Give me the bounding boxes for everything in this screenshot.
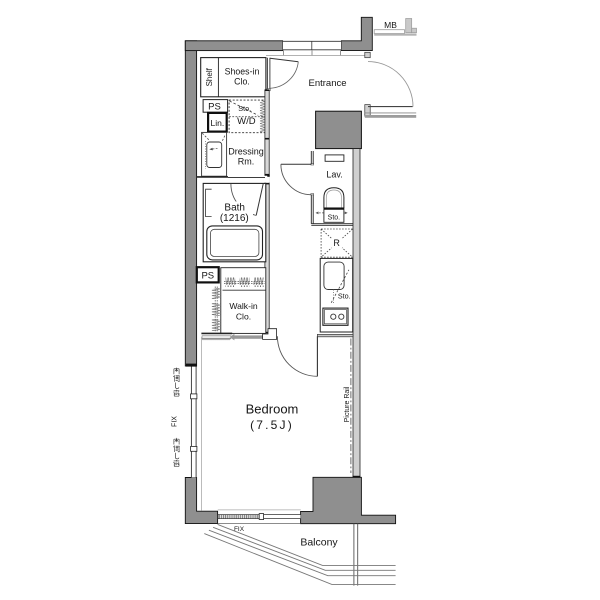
- svg-text:Clo.: Clo.: [236, 312, 251, 322]
- svg-text:FIX: FIX: [171, 416, 178, 427]
- svg-text:Entrance: Entrance: [308, 78, 346, 89]
- svg-text:W/D: W/D: [237, 116, 256, 127]
- svg-text:PS: PS: [208, 102, 221, 113]
- svg-text:Dressing: Dressing: [228, 147, 264, 157]
- svg-text:Sto.: Sto.: [338, 292, 351, 301]
- svg-text:FIX: FIX: [234, 526, 245, 533]
- svg-text:Rm.: Rm.: [238, 157, 255, 167]
- svg-text:Bedroom: Bedroom: [246, 402, 299, 417]
- svg-text:Sto.: Sto.: [328, 214, 341, 221]
- svg-text:MB: MB: [384, 20, 397, 30]
- svg-text:Lav.: Lav.: [326, 169, 342, 179]
- svg-text:Picture Rail: Picture Rail: [344, 386, 351, 422]
- svg-text:Shoes-in: Shoes-in: [225, 67, 260, 77]
- svg-text:Clo.: Clo.: [234, 77, 250, 87]
- svg-text:Sto.: Sto.: [238, 104, 251, 113]
- svg-text:Shelf: Shelf: [205, 67, 214, 86]
- svg-text:Bath: Bath: [224, 203, 245, 214]
- svg-text:PS: PS: [201, 271, 214, 282]
- svg-text:Walk-in: Walk-in: [229, 301, 258, 311]
- svg-text:(1216): (1216): [220, 213, 249, 224]
- svg-text:(7.5J): (7.5J): [250, 418, 294, 432]
- svg-text:Balcony: Balcony: [300, 536, 338, 548]
- svg-text:R: R: [333, 238, 340, 248]
- svg-text:Lin.: Lin.: [211, 118, 225, 128]
